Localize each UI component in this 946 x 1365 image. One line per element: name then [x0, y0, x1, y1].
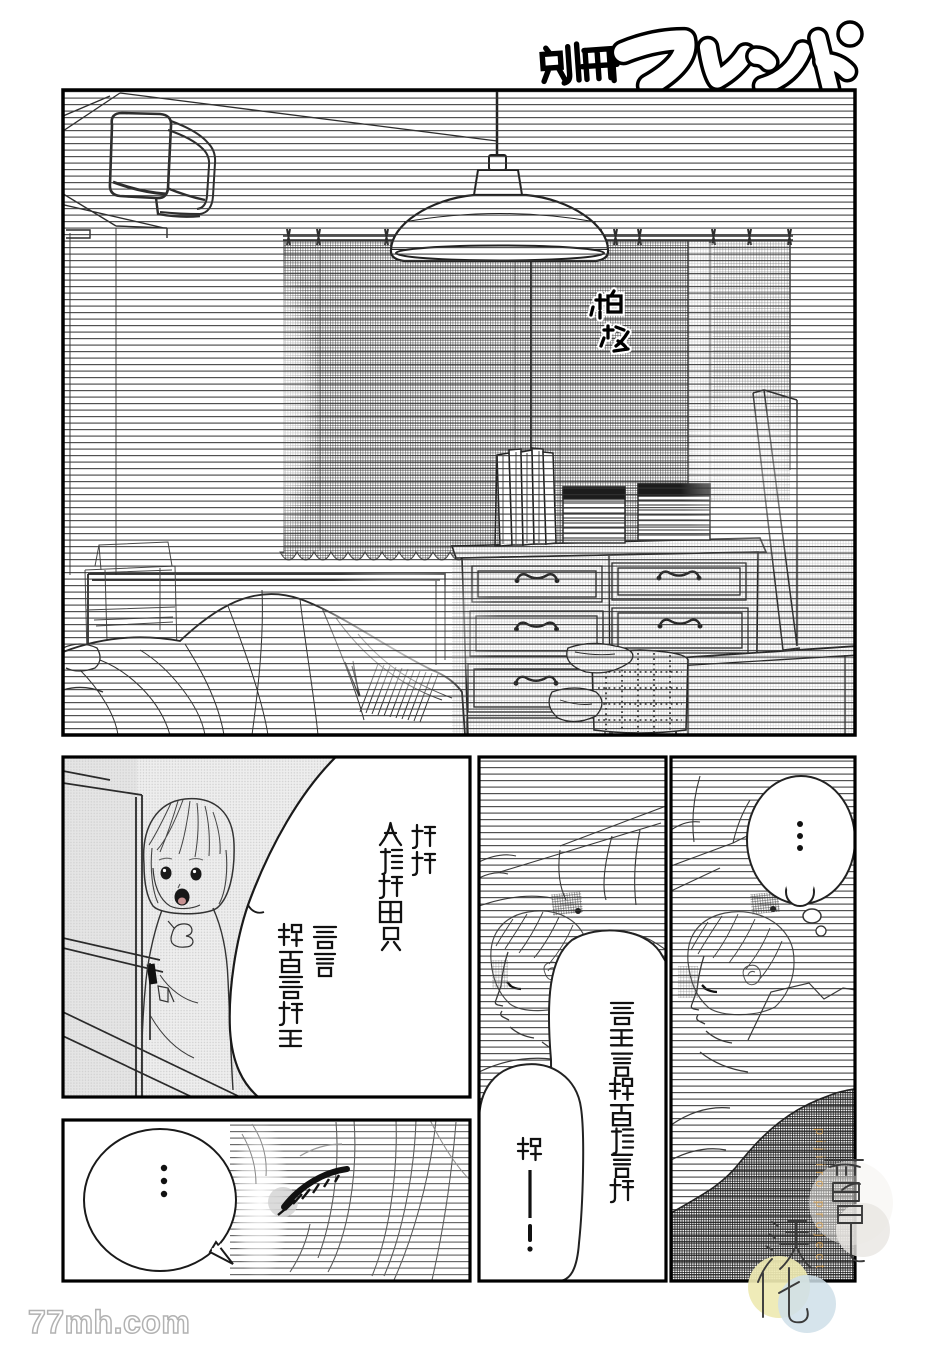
svg-text:pijiiro project: pijiiro project	[813, 1128, 827, 1273]
svg-text:77mh.com: 77mh.com	[28, 1304, 190, 1340]
